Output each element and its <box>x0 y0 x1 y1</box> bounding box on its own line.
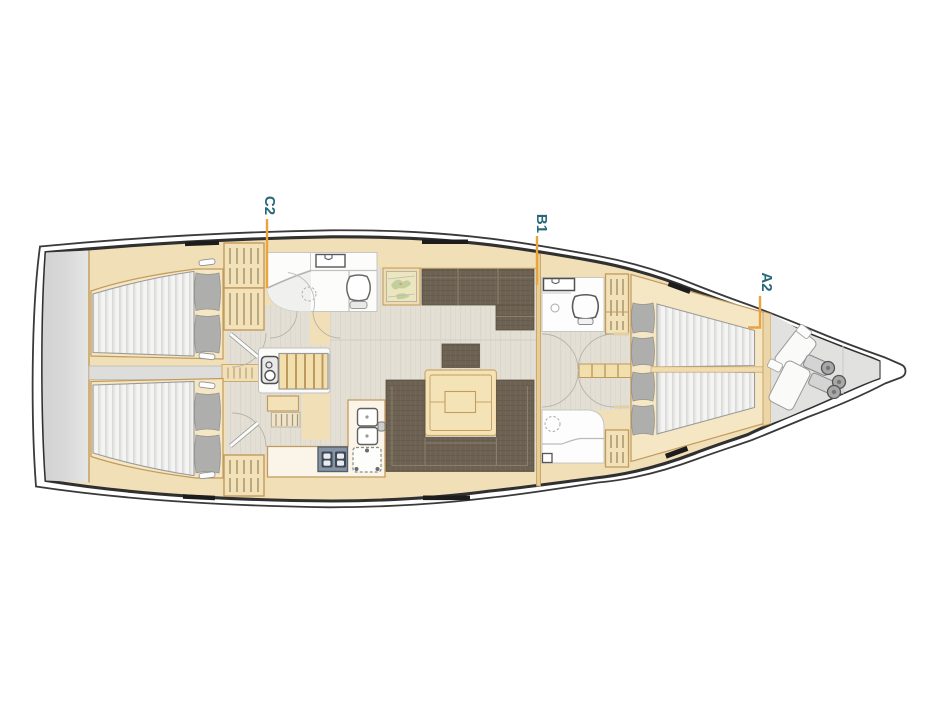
svg-text:A2: A2 <box>758 272 775 291</box>
svg-text:C2: C2 <box>261 196 278 215</box>
svg-text:B1: B1 <box>533 214 550 233</box>
